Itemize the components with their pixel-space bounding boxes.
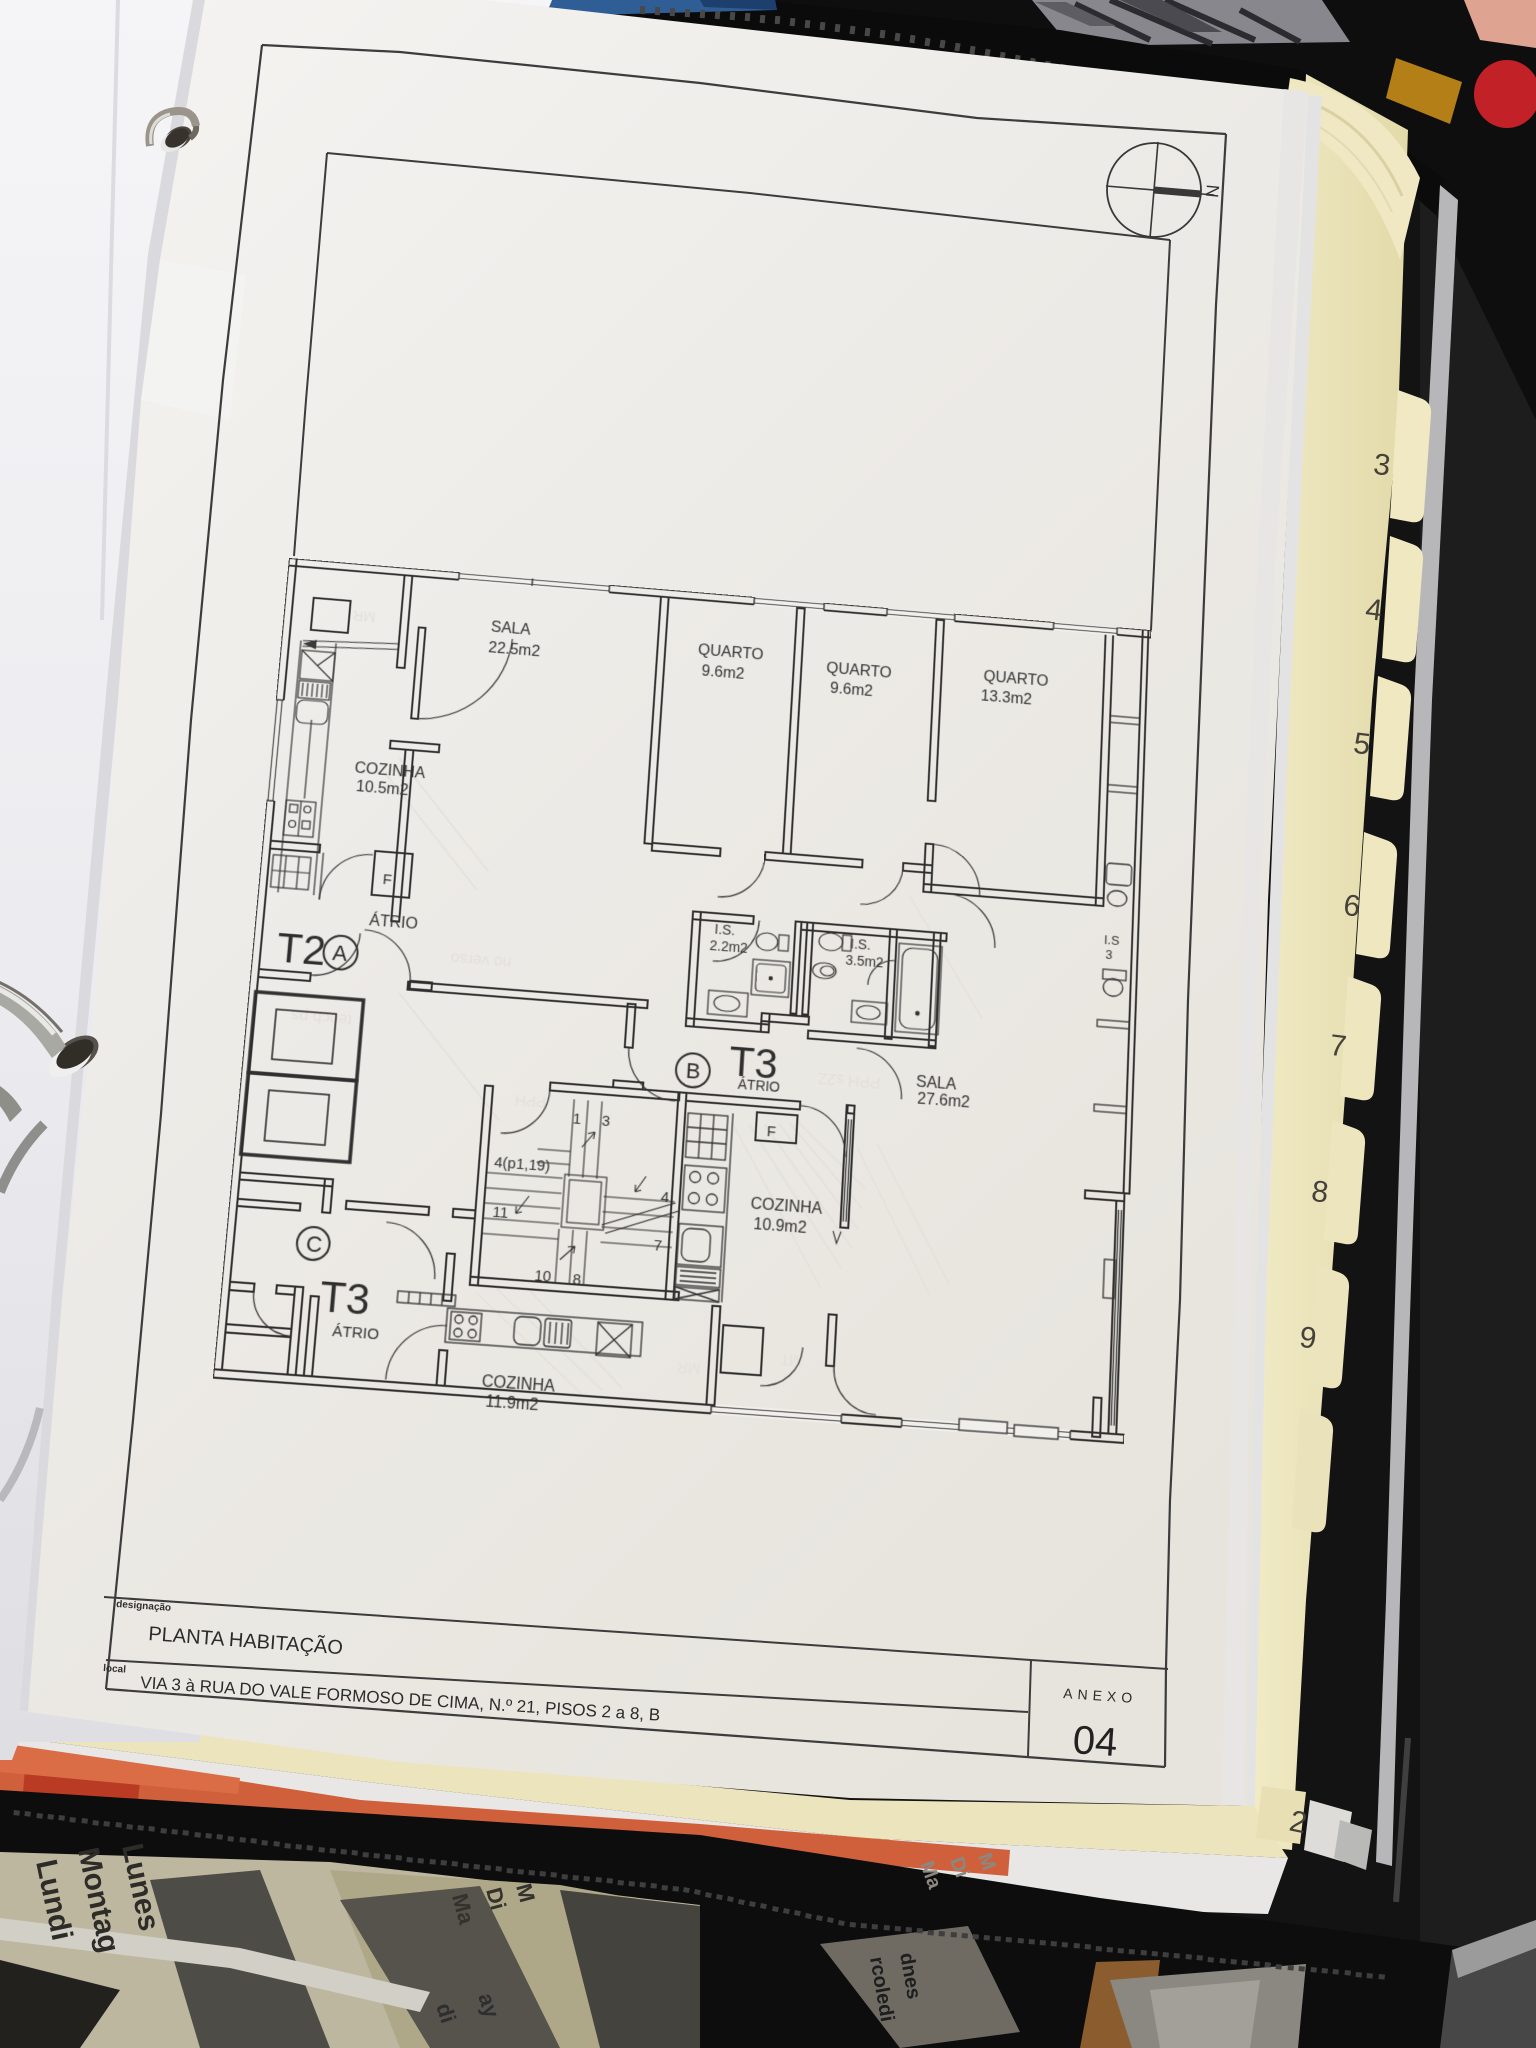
svg-text:F: F <box>766 1122 776 1140</box>
svg-text:7: 7 <box>653 1236 663 1254</box>
svg-text:C: C <box>305 1232 323 1258</box>
svg-text:QUARTO: QUARTO <box>698 641 764 663</box>
svg-text:ÁTRIO: ÁTRIO <box>332 1322 380 1343</box>
svg-text:N: N <box>1202 184 1223 199</box>
svg-text:I.S.: I.S. <box>850 936 871 953</box>
svg-text:4: 4 <box>660 1188 670 1206</box>
svg-text:3: 3 <box>1105 947 1113 962</box>
svg-text:9.6m2: 9.6m2 <box>701 662 745 683</box>
svg-text:teocb ps: teocb ps <box>291 1006 353 1029</box>
svg-text:ÁTRIO: ÁTRIO <box>737 1076 780 1095</box>
svg-text:13.3m2: 13.3m2 <box>980 687 1032 708</box>
svg-text:T2: T2 <box>275 925 328 975</box>
svg-text:10.9m2: 10.9m2 <box>753 1215 807 1237</box>
svg-text:11: 11 <box>492 1203 509 1221</box>
svg-text:local: local <box>103 1663 127 1676</box>
svg-text:I.S.: I.S. <box>714 921 736 938</box>
svg-text:8: 8 <box>572 1270 582 1288</box>
svg-text:22.5m2: 22.5m2 <box>488 639 541 660</box>
svg-text:QUARTO: QUARTO <box>983 668 1048 690</box>
svg-text:04: 04 <box>1071 1718 1118 1765</box>
svg-text:MT: MT <box>779 1351 802 1370</box>
svg-text:10: 10 <box>534 1266 552 1285</box>
svg-text:T3: T3 <box>318 1273 372 1325</box>
svg-text:1: 1 <box>572 1110 582 1128</box>
svg-text:10.5m2: 10.5m2 <box>355 778 409 800</box>
svg-text:no verso: no verso <box>450 949 512 971</box>
svg-text:MR: MR <box>676 1359 701 1378</box>
svg-text:MR: MR <box>352 608 376 626</box>
svg-text:9.6m2: 9.6m2 <box>830 680 874 700</box>
svg-text:3.5m2: 3.5m2 <box>845 952 884 971</box>
svg-text:I.S: I.S <box>1104 933 1120 949</box>
svg-text:QUARTO: QUARTO <box>826 660 892 682</box>
svg-text:27.6m2: 27.6m2 <box>917 1090 970 1112</box>
svg-text:11.9m2: 11.9m2 <box>485 1392 539 1415</box>
svg-text:ÁTRIO: ÁTRIO <box>369 912 419 933</box>
svg-text:4(p1,19): 4(p1,19) <box>494 1153 551 1174</box>
svg-text:F: F <box>382 870 393 887</box>
svg-text:PPH s2Z: PPH s2Z <box>817 1069 881 1092</box>
svg-text:A: A <box>331 941 348 966</box>
svg-text:SALA: SALA <box>490 618 532 638</box>
svg-text:3: 3 <box>601 1112 611 1130</box>
svg-text:2.2m2: 2.2m2 <box>709 937 748 956</box>
svg-text:B: B <box>685 1059 701 1084</box>
svg-text:PPH: PPH <box>515 1092 547 1111</box>
